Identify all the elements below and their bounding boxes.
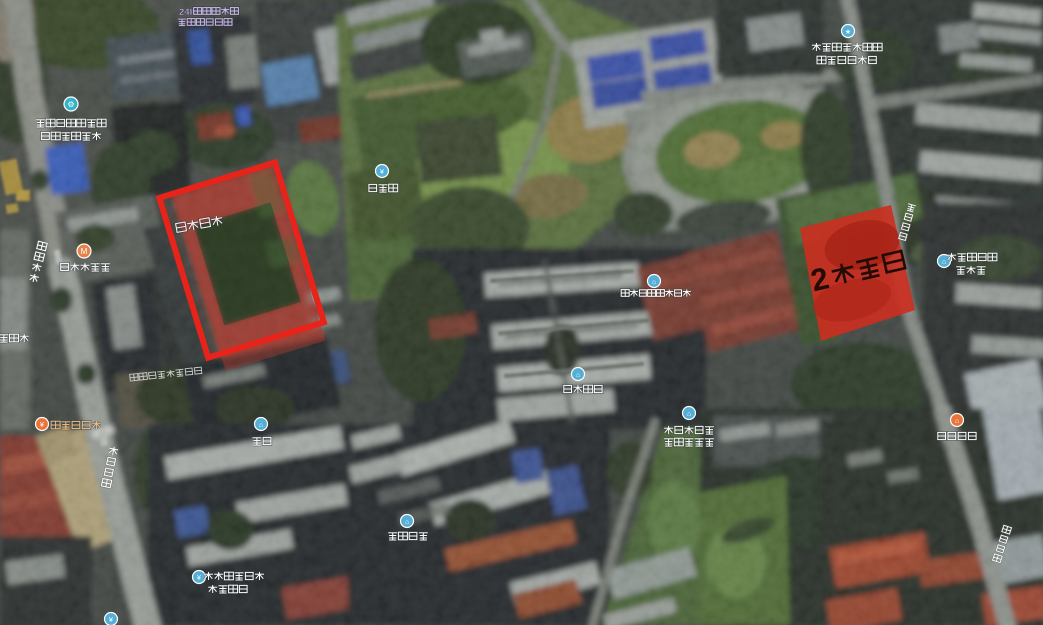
svg-text:⌂: ⌂ bbox=[405, 519, 409, 526]
svg-text:¥: ¥ bbox=[109, 617, 113, 624]
svg-text:⌂: ⌂ bbox=[942, 259, 946, 266]
svg-text:¥: ¥ bbox=[40, 422, 44, 429]
svg-text:⌂: ⌂ bbox=[652, 279, 656, 286]
svg-text:⌂: ⌂ bbox=[259, 422, 263, 429]
svg-text:⌂: ⌂ bbox=[955, 418, 959, 425]
svg-text:⌂: ⌂ bbox=[576, 372, 580, 379]
svg-text:M: M bbox=[81, 247, 88, 256]
svg-text:¥: ¥ bbox=[197, 575, 201, 582]
svg-text:★: ★ bbox=[845, 28, 851, 36]
svg-text:⚙: ⚙ bbox=[67, 100, 74, 109]
svg-text:⌂: ⌂ bbox=[687, 411, 691, 418]
svg-text:¥: ¥ bbox=[380, 169, 384, 176]
